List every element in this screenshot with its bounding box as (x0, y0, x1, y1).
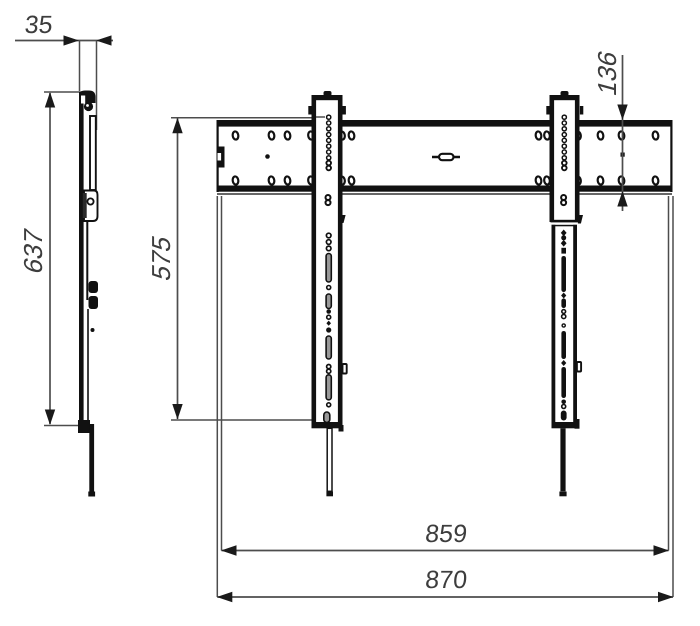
svg-text:35: 35 (24, 11, 54, 39)
svg-text:637: 637 (18, 225, 47, 276)
svg-text:870: 870 (424, 566, 468, 594)
svg-text:859: 859 (424, 520, 468, 548)
svg-text:575: 575 (146, 232, 175, 283)
svg-text:136: 136 (592, 47, 621, 98)
